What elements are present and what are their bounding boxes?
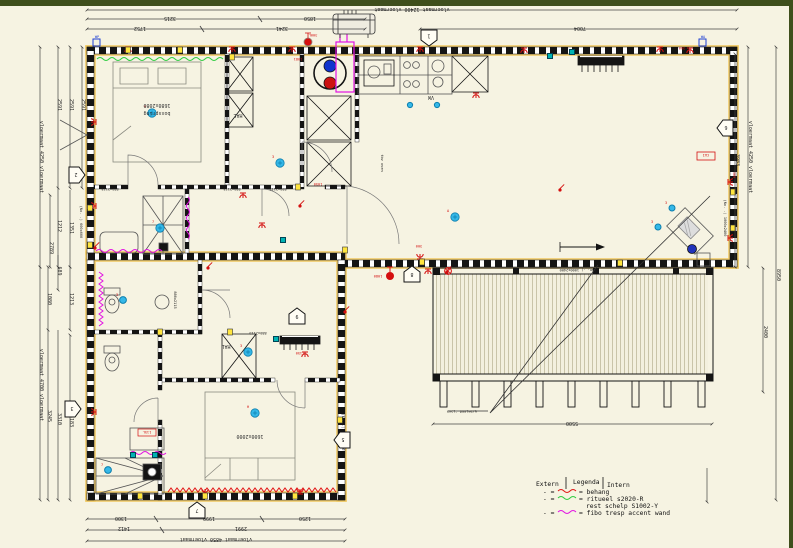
dim-label: 1412 bbox=[118, 525, 130, 531]
dim-label: vloermaat 12400 vloermaat bbox=[374, 6, 449, 12]
tag-label: 1050 bbox=[314, 182, 323, 186]
wa-symbol bbox=[699, 39, 706, 46]
legend-item-behang: = behang bbox=[579, 489, 610, 496]
kitchen-counter bbox=[358, 56, 452, 94]
utility-fixtures bbox=[96, 428, 164, 494]
tag-label: 115L bbox=[143, 430, 152, 434]
dim-label: 2591 bbox=[80, 99, 86, 111]
door-size-label: 880x2115 bbox=[269, 187, 286, 191]
light-label: H bbox=[247, 405, 249, 409]
dim-label: 2789 bbox=[48, 242, 54, 254]
tag-label: 300L bbox=[309, 33, 318, 37]
wa-label: WA bbox=[701, 35, 706, 39]
socket-icon bbox=[240, 193, 246, 198]
dim-label: 1850 bbox=[304, 15, 316, 21]
section-marker-label: 3 bbox=[70, 405, 73, 411]
right-border-bar bbox=[789, 0, 793, 548]
magenta-wavy-bath1-h bbox=[96, 250, 162, 253]
section-marker-label: 9 bbox=[295, 313, 298, 319]
legend-prefix: - = bbox=[543, 510, 555, 517]
section-marker-label: 1 bbox=[427, 33, 430, 39]
door-size-label: 880x2115 bbox=[173, 291, 177, 308]
door-size-label: 880x2115 bbox=[101, 187, 118, 191]
wp-label: WP bbox=[95, 35, 99, 39]
tag-label: 300 bbox=[679, 46, 686, 50]
switch-icon bbox=[206, 262, 212, 269]
dim-label: 3215 bbox=[164, 15, 176, 21]
legend-magenta-wavy bbox=[558, 511, 576, 514]
green-wavy-bedroom1 bbox=[97, 58, 223, 61]
direction-arrow bbox=[560, 242, 605, 252]
floorplan-drawing: excl. paalwerk bbox=[0, 0, 793, 548]
bathtub bbox=[100, 232, 138, 253]
spot-light-icon bbox=[407, 102, 412, 107]
light-label: A bbox=[447, 209, 450, 213]
deck-note: excl. paalwerk bbox=[447, 410, 478, 414]
light-label: 3 bbox=[240, 344, 242, 348]
spot-light-icon bbox=[434, 102, 439, 107]
floorplan-canvas: excl. paalwerk bbox=[0, 0, 793, 548]
dim-label: 3245 bbox=[46, 410, 52, 422]
socket-icon bbox=[473, 93, 479, 98]
window-size-label: (No. .) 1000x2400 bbox=[560, 268, 597, 272]
deck: excl. paalwerk bbox=[433, 196, 713, 414]
light-label: 3 bbox=[651, 220, 653, 224]
light-label: 7 bbox=[101, 463, 103, 467]
dim-label: 3310 bbox=[56, 413, 62, 425]
bed-size-label: 1600x2000 bbox=[236, 433, 263, 439]
canopy-line bbox=[60, 120, 87, 150]
dim-label: 2400 bbox=[762, 326, 768, 338]
room-name-label: HAL bbox=[221, 343, 230, 349]
door-size-label: 880x2115 bbox=[223, 187, 240, 191]
dim-label: 1212 bbox=[56, 220, 62, 232]
dim-label: vloermaat 4850 vloermaat bbox=[180, 536, 252, 542]
light-label: 7 bbox=[152, 220, 154, 224]
wp-symbol bbox=[93, 39, 100, 46]
washbasin bbox=[155, 295, 169, 309]
switch-icon bbox=[298, 200, 304, 207]
legend-extern: Extern bbox=[536, 481, 559, 488]
switch-icon bbox=[558, 184, 564, 191]
tag-label: 1080 bbox=[374, 274, 383, 278]
light-label: 3 bbox=[116, 293, 118, 297]
tag-label: 1081 bbox=[294, 57, 303, 61]
dim-label: 3983 bbox=[734, 154, 740, 166]
dim-label: 1351 bbox=[68, 222, 74, 234]
legend-green-wavy bbox=[558, 497, 576, 500]
window-size-label: (No. .) 600x600 bbox=[79, 206, 83, 238]
dim-label: 2591 bbox=[68, 99, 74, 111]
legend: Extern Legenda Intern - = = behang - = =… bbox=[536, 477, 670, 517]
light-label: 3 bbox=[665, 201, 667, 205]
appliance-label: VW bbox=[427, 94, 434, 100]
tag-label: 300 bbox=[416, 244, 423, 248]
door-size-label: 880x2115 bbox=[249, 331, 266, 335]
room-name-label: HAL bbox=[233, 112, 242, 118]
legend-item-ritueel: = ritueel s2020-R bbox=[579, 496, 644, 503]
socket-icon bbox=[425, 269, 431, 274]
light-label: 3 bbox=[272, 155, 274, 159]
interior-walls bbox=[94, 54, 359, 500]
socket-icon bbox=[259, 223, 265, 228]
dim-label: 1300 bbox=[115, 515, 127, 521]
tag-label: 300 bbox=[732, 172, 736, 179]
bed-name-label: boxspring bbox=[143, 110, 170, 116]
dim-label: vloermaat 4700 vloermaat bbox=[38, 349, 44, 421]
dim-label: 689 bbox=[56, 266, 62, 275]
appliance-label: tbv oven bbox=[380, 154, 384, 171]
magenta-zigzag-bath3 bbox=[99, 272, 103, 326]
legend-title: Legenda bbox=[573, 479, 600, 486]
dim-label: 8950 bbox=[775, 269, 781, 281]
legend-prefix: - = bbox=[543, 496, 555, 503]
section-marker-label: 5 bbox=[341, 436, 344, 442]
legend-prefix: - = bbox=[543, 489, 555, 496]
tag-label: CAI bbox=[703, 153, 710, 157]
dim-label: 1213 bbox=[68, 293, 74, 305]
dim-label: vloermaat 4250 vloermaat bbox=[38, 121, 44, 193]
dim-label: vloermaat 4250 vloermaat bbox=[747, 121, 753, 193]
dim-label: 3241 bbox=[276, 25, 288, 31]
legend-item-rest-schelp: rest schelp S1002-Y bbox=[586, 503, 658, 510]
dim-label: 1752 bbox=[134, 25, 146, 31]
legend-intern: Intern bbox=[607, 482, 630, 489]
legend-item-fibo: = fibo tresp accent wand bbox=[579, 510, 670, 517]
section-marker-label: 7 bbox=[195, 507, 198, 513]
ceiling-point-icon bbox=[386, 272, 394, 280]
bed-size-label: 1680x2080 bbox=[143, 102, 170, 108]
dim-label: 2991 bbox=[235, 525, 247, 531]
dim-label: 1080 bbox=[46, 293, 52, 305]
deck-piles bbox=[440, 381, 705, 407]
dim-label: 1250 bbox=[299, 515, 311, 521]
dim-label: 5500 bbox=[566, 420, 578, 426]
dim-label: 7004 bbox=[574, 25, 586, 31]
window-size-label: (No. .) 1000x2400 bbox=[723, 200, 727, 237]
legend-red-wavy bbox=[558, 490, 576, 493]
top-border-bar bbox=[0, 0, 793, 6]
toilet bbox=[104, 288, 120, 371]
section-marker-label: 2 bbox=[74, 171, 77, 177]
section-marker-label: 8 bbox=[410, 271, 413, 277]
chair-symbol bbox=[688, 245, 697, 254]
tag-label: 1150 bbox=[296, 351, 305, 355]
dim-label: 2591 bbox=[56, 99, 62, 111]
section-marker-label: 6 bbox=[724, 124, 727, 130]
